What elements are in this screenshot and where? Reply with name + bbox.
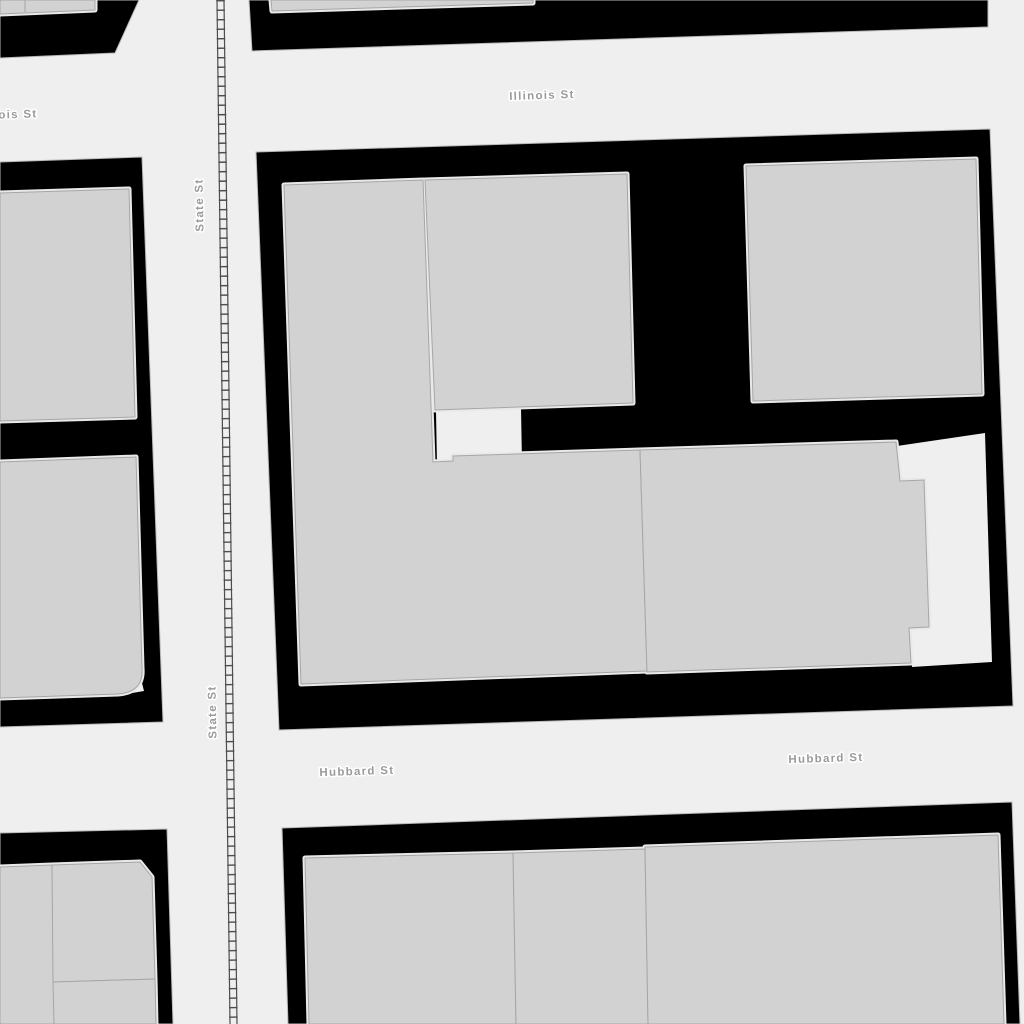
building xyxy=(0,457,142,698)
building xyxy=(52,862,155,982)
building xyxy=(0,189,135,421)
map-canvas[interactable]: Illinois St ois St State St State St Hub… xyxy=(0,0,1024,1024)
building xyxy=(425,174,633,410)
building xyxy=(305,853,516,1024)
building xyxy=(0,865,55,1024)
building xyxy=(53,979,156,1024)
street-label-state-upper: State St xyxy=(194,178,207,231)
street-label-illinois-clipped: ois St xyxy=(0,108,38,121)
building xyxy=(513,849,648,1024)
street-label-state-lower: State St xyxy=(207,685,220,738)
building xyxy=(645,835,1004,1024)
building xyxy=(640,442,929,672)
building xyxy=(746,159,982,401)
street-label-illinois: Illinois St xyxy=(509,89,575,103)
street-label-hubbard-west: Hubbard St xyxy=(319,765,394,779)
street-label-hubbard-east: Hubbard St xyxy=(788,752,863,766)
